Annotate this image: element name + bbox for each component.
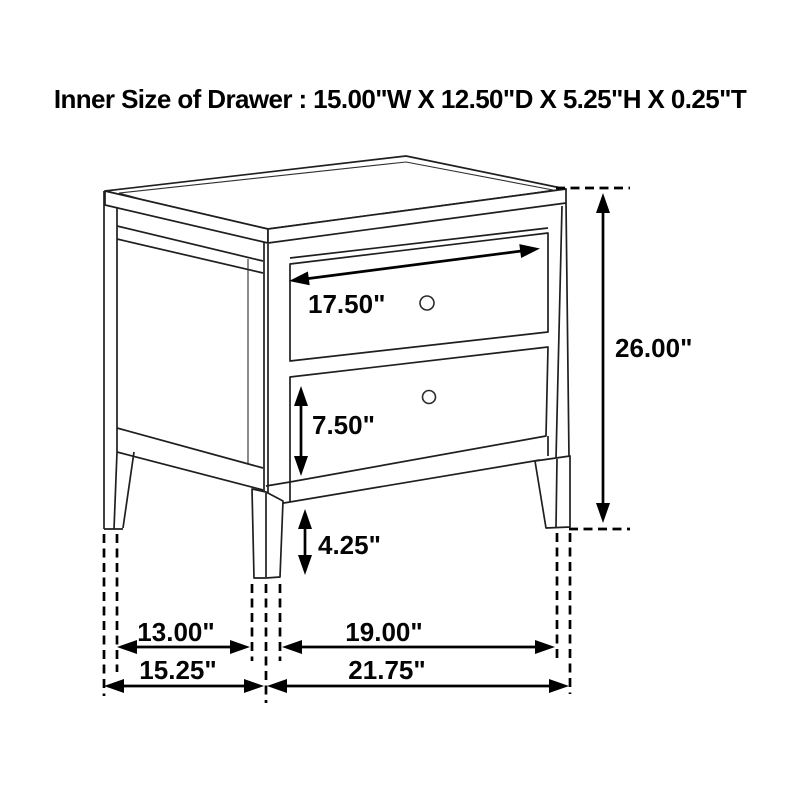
- side-panel: [104, 191, 268, 529]
- dim-label-leg-height: 4.25": [318, 530, 381, 560]
- dim-label-side-leg-spacing: 13.00": [137, 617, 214, 647]
- dim-leg-height: 4.25": [298, 509, 381, 575]
- dim-label-overall-height: 26.00": [615, 333, 692, 363]
- drawer-knob-icon: [423, 391, 436, 404]
- dim-side-overall-depth: 15.25": [104, 655, 264, 693]
- dim-label-front-leg-spacing: 19.00": [345, 617, 422, 647]
- dimension-diagram-page: Inner Size of Drawer : 15.00"W X 12.50"D…: [0, 0, 800, 800]
- dim-front-leg-spacing: 19.00": [282, 617, 555, 654]
- dim-side-leg-spacing: 13.00": [117, 617, 250, 654]
- dim-front-overall-width: 21.75": [267, 655, 569, 693]
- front-left-leg: [252, 489, 283, 578]
- dim-label-drawer-width: 17.50": [308, 289, 385, 319]
- dim-label-bottom-drawer-height: 7.50": [312, 410, 375, 440]
- drawer-knob-icon: [420, 296, 434, 310]
- front-right-leg: [535, 456, 570, 528]
- dim-overall-height: 26.00": [596, 193, 692, 523]
- dim-label-side-overall-depth: 15.25": [139, 655, 216, 685]
- table-top: [105, 156, 566, 243]
- dim-label-front-overall-width: 21.75": [348, 655, 425, 685]
- nightstand-dimension-diagram: 17.50" 7.50" 4.25" 26.00" 13: [0, 0, 800, 800]
